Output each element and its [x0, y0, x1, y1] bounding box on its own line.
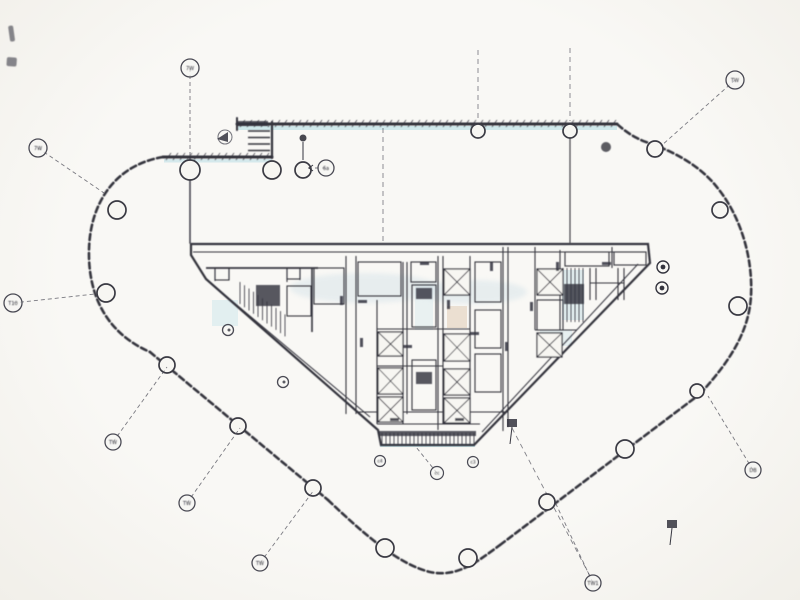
door-tick [447, 300, 450, 309]
column-marker [180, 160, 200, 180]
door-tick [390, 418, 399, 421]
bubble-label: 7W [34, 146, 42, 152]
tag-labeled: c4 [375, 456, 386, 467]
dark-wall-block [564, 284, 584, 304]
column-marker [159, 357, 175, 373]
column-marker [471, 124, 485, 138]
bubble-leader-line [113, 367, 167, 442]
left-arc-wall [89, 157, 163, 352]
floor-plan-drawing: 7W7WTWT10TWTWTWTW1DB6a c4ccc3 [0, 0, 800, 600]
scan-smudges [6, 25, 17, 66]
scan-smudge [8, 25, 15, 42]
tag-labeled: c3 [468, 457, 479, 468]
dark-wall-block [237, 121, 268, 126]
dark-wall-block [379, 431, 476, 436]
dark-wall-block [416, 372, 432, 384]
grid-bubble: DB [708, 396, 761, 478]
scan-tint [238, 126, 617, 130]
right-arc-wall [617, 124, 751, 394]
column-marker [263, 161, 281, 179]
bubble-label: TW1 [586, 581, 598, 587]
core-room [287, 268, 300, 279]
scan-tint [447, 306, 467, 328]
bubble-label: DB [749, 468, 757, 474]
bubble-leader-line [38, 148, 104, 193]
column-marker [459, 549, 477, 567]
door-tick [403, 345, 412, 348]
bubble-leader-line [187, 428, 240, 503]
core-room [412, 360, 436, 410]
tag-label: cc [435, 472, 440, 477]
door-tick [360, 338, 363, 347]
door-tick [556, 262, 559, 271]
bubble-label: 6a [323, 166, 329, 172]
tag-ringdot [656, 282, 668, 294]
bubble-leader-line [556, 504, 593, 583]
flag-icon [507, 419, 517, 427]
core-room [475, 310, 501, 348]
column-marker [616, 440, 634, 458]
door-tick [358, 300, 367, 303]
grid-bubble: T10 [4, 294, 95, 312]
tag-label: c3 [470, 460, 475, 466]
column-marker [539, 494, 555, 510]
column-marker [305, 480, 321, 496]
bubble-label: TW [108, 440, 117, 446]
column-marker [108, 201, 126, 219]
tag-section [217, 130, 232, 144]
column-marker [563, 124, 577, 138]
scan-smudge [6, 57, 17, 67]
column-marker [712, 202, 728, 218]
watermark-blob [417, 280, 527, 304]
tag-hollow [278, 377, 289, 388]
bubble-leader-line [13, 294, 95, 303]
core-room [475, 354, 501, 392]
door-tick [505, 342, 508, 351]
grid-bubble: TW1 [556, 504, 601, 591]
bubble-label: TW [730, 78, 739, 84]
column-marker [376, 539, 394, 557]
core-room [614, 252, 646, 265]
core-room [215, 268, 229, 280]
bubble-leader-line [708, 396, 753, 470]
tag-hollow [223, 325, 234, 336]
door-tick [470, 332, 479, 335]
door-tick [455, 418, 464, 421]
column-marker [729, 297, 747, 315]
grid-bubble: TW [105, 367, 167, 450]
bubble-label: TW [182, 501, 191, 507]
door-tick [420, 262, 429, 265]
column-marker [647, 141, 663, 157]
door-tick [602, 262, 611, 265]
grid-bubbles: 7W7WTWT10TWTWTWTW1DB6a [4, 59, 761, 591]
bubble-label: 7W [186, 66, 194, 72]
tag-flag [507, 419, 517, 444]
grid-bubble: TW [661, 71, 744, 146]
watermark [290, 273, 527, 304]
bubble-leader-line [260, 490, 314, 563]
grid-bubble: 7W [181, 59, 199, 159]
grid-bubble: TW [179, 428, 240, 511]
dark-wall-block [256, 285, 280, 306]
column-marker [690, 384, 704, 398]
flag-icon [667, 520, 677, 528]
tag-labeled: cc [416, 447, 444, 480]
floor-plan-document: 7W7WTWT10TWTWTWTW1DB6a c4ccc3 [0, 0, 800, 600]
bubble-label: TW [255, 561, 264, 567]
door-tick [340, 296, 343, 305]
door-tick [530, 302, 533, 311]
dark-wall-block [416, 288, 432, 299]
tag-blob [601, 142, 611, 152]
grid-bubble: TW [252, 490, 314, 571]
grid-bubble: 7W [29, 139, 104, 193]
tag-label: c4 [377, 459, 382, 465]
column-marker [97, 284, 115, 302]
bubble-leader-line [661, 80, 735, 146]
column-marker [295, 162, 311, 178]
bubble-label: T10 [7, 301, 17, 307]
tag-flag [667, 520, 677, 545]
tag-dotstem [300, 135, 307, 161]
door-tick [490, 262, 493, 271]
tag-ringdot [657, 261, 669, 273]
core-room [537, 300, 563, 330]
